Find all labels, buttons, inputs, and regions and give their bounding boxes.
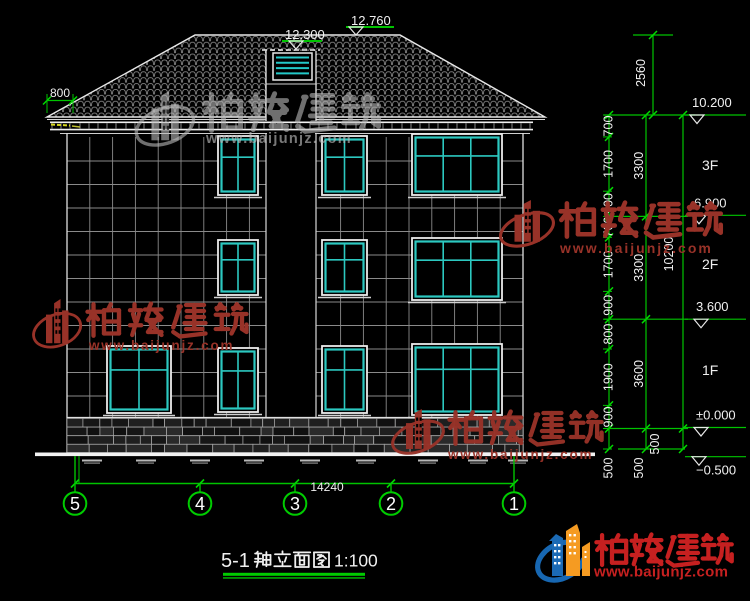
svg-text:www.baijunjz.com: www.baijunjz.com <box>205 131 352 147</box>
svg-text:500: 500 <box>632 458 646 479</box>
svg-text:12.760: 12.760 <box>351 13 391 28</box>
svg-text:14240: 14240 <box>310 480 344 494</box>
svg-text:900: 900 <box>602 295 616 316</box>
svg-text:±0.000: ±0.000 <box>696 408 736 423</box>
svg-text:800: 800 <box>602 324 616 345</box>
svg-text:800: 800 <box>50 86 70 100</box>
svg-text:3F: 3F <box>702 157 718 173</box>
svg-text:2560: 2560 <box>634 59 648 87</box>
svg-text:4: 4 <box>195 494 205 514</box>
svg-text:12.300: 12.300 <box>285 27 325 42</box>
svg-text:3300: 3300 <box>632 152 646 180</box>
svg-text:10.200: 10.200 <box>692 95 732 110</box>
svg-text:1700: 1700 <box>602 150 616 178</box>
svg-text:700: 700 <box>602 116 616 137</box>
svg-text:−0.500: −0.500 <box>696 463 736 478</box>
svg-text:5: 5 <box>70 494 80 514</box>
svg-text:1:100: 1:100 <box>334 551 378 571</box>
svg-text:1: 1 <box>509 494 519 514</box>
svg-text:5-1: 5-1 <box>221 550 250 572</box>
svg-text:3: 3 <box>290 494 300 514</box>
svg-text:1900: 1900 <box>602 363 616 391</box>
svg-text:www.baijunjz.com: www.baijunjz.com <box>447 447 593 462</box>
svg-text:500: 500 <box>648 434 662 455</box>
svg-text:500: 500 <box>602 458 616 479</box>
svg-text:www.baijunjz.com: www.baijunjz.com <box>559 240 713 256</box>
svg-text:www.baijunjz.com: www.baijunjz.com <box>593 564 728 581</box>
svg-text:1F: 1F <box>702 362 718 378</box>
svg-text:2F: 2F <box>702 256 718 272</box>
svg-text:www.baijunjz.com: www.baijunjz.com <box>88 338 234 353</box>
svg-text:900: 900 <box>602 407 616 428</box>
svg-text:2: 2 <box>386 494 396 514</box>
svg-text:3300: 3300 <box>632 254 646 282</box>
svg-text:3.600: 3.600 <box>696 299 729 314</box>
svg-text:3600: 3600 <box>632 360 646 388</box>
